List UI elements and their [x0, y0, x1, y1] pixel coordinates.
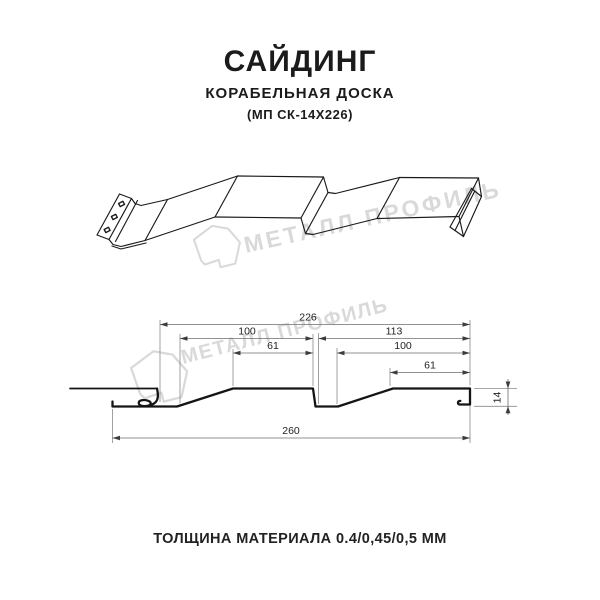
dimension-lines [113, 325, 509, 439]
flange-face [97, 194, 132, 240]
dim-overall-width: 260 [282, 425, 300, 437]
step-far [324, 177, 329, 193]
dim-cover-width: 226 [299, 312, 317, 324]
dim-board1-flat: 61 [267, 340, 279, 352]
flange-hole [104, 227, 110, 232]
board1-top-near-edge [215, 217, 301, 218]
flange-hole [119, 201, 125, 206]
fold-strip-near-end [109, 240, 145, 247]
dim-board2-width: 100 [394, 340, 412, 352]
dimension-arrows [113, 322, 511, 440]
section-profile [70, 389, 470, 407]
board2-top-far-edge [400, 178, 479, 179]
brand-watermark-text: МЕТАЛЛ ПРОФИЛЬ [179, 294, 391, 369]
brand-watermark-lower: МЕТАЛЛ ПРОФИЛЬ [131, 294, 390, 401]
step-edge [301, 177, 324, 218]
dim-board1-width: 100 [238, 326, 256, 338]
dim-profile-height: 14 [492, 392, 504, 404]
product-datasheet-page: { "header": { "title": "САЙДИНГ", "subti… [0, 0, 600, 600]
dim-right-span: 113 [386, 326, 403, 338]
material-thickness-note: ТОЛЩИНА МАТЕРИАЛА 0.4/0,45/0,5 ММ [0, 531, 600, 547]
board2-slope-far-edge [328, 178, 400, 194]
flange-hole [111, 214, 117, 219]
profile-outline [113, 389, 471, 407]
technical-drawing-canvas: МЕТАЛЛ ПРОФИЛЬ МЕТАЛЛ ПРОФИЛЬ [0, 0, 600, 600]
brand-watermark-upper: МЕТАЛЛ ПРОФИЛЬ [194, 176, 504, 268]
brand-logo-icon [194, 226, 240, 267]
brand-watermark-text: МЕТАЛЛ ПРОФИЛЬ [241, 176, 503, 258]
dim-board2-flat: 61 [424, 360, 436, 372]
brand-logo-icon [131, 351, 187, 401]
board1-top-far-edge [238, 176, 324, 177]
